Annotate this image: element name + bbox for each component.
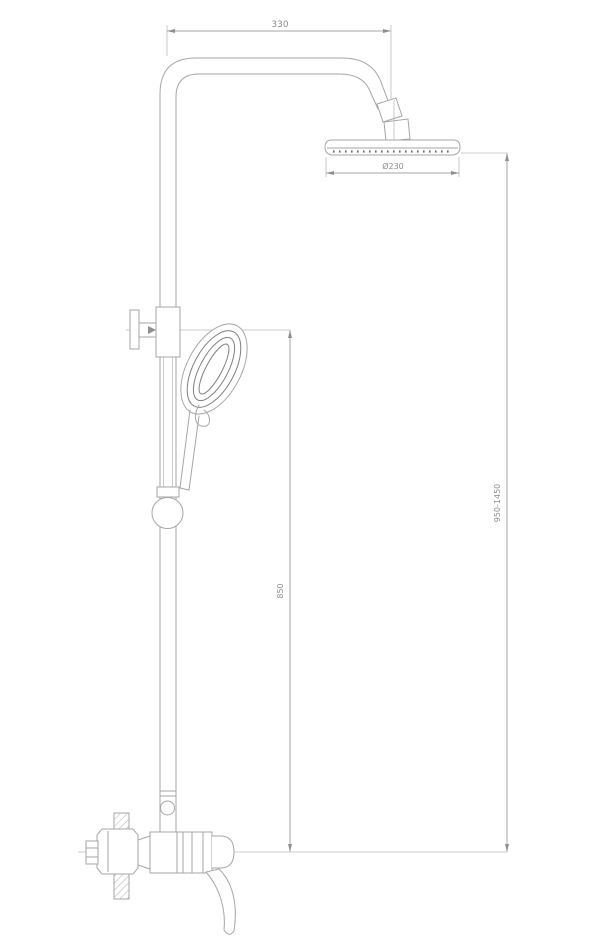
mixer-end-cap [212, 836, 234, 868]
dimension-label-riser-height: 850 [276, 583, 285, 598]
slide-bar [152, 357, 183, 529]
dimension-height-range: 950-1450 [461, 153, 509, 852]
dimension-label-height-range: 950-1450 [493, 484, 502, 523]
rain-shower-head [325, 140, 460, 155]
lower-pipe-fittings [160, 791, 176, 815]
mixer-valve [86, 829, 235, 934]
pipe-ring [161, 801, 175, 815]
technical-drawing-page: 330 Ø230 950-1450 850 [0, 0, 605, 950]
wall-bracket [130, 307, 180, 357]
dimension-label-head-diameter: Ø230 [382, 161, 404, 171]
wall-union-flange [97, 829, 138, 874]
slide-collar [157, 487, 179, 497]
inlet-hex-nut [86, 841, 98, 864]
dimension-label-arm-length: 330 [271, 20, 288, 30]
slider-knob [152, 498, 183, 529]
hand-shower [167, 313, 261, 490]
dimension-head-diameter: Ø230 [326, 157, 459, 177]
shower-column-drawing: 330 Ø230 950-1450 850 [0, 0, 605, 950]
mixer-lever-handle [206, 869, 235, 934]
